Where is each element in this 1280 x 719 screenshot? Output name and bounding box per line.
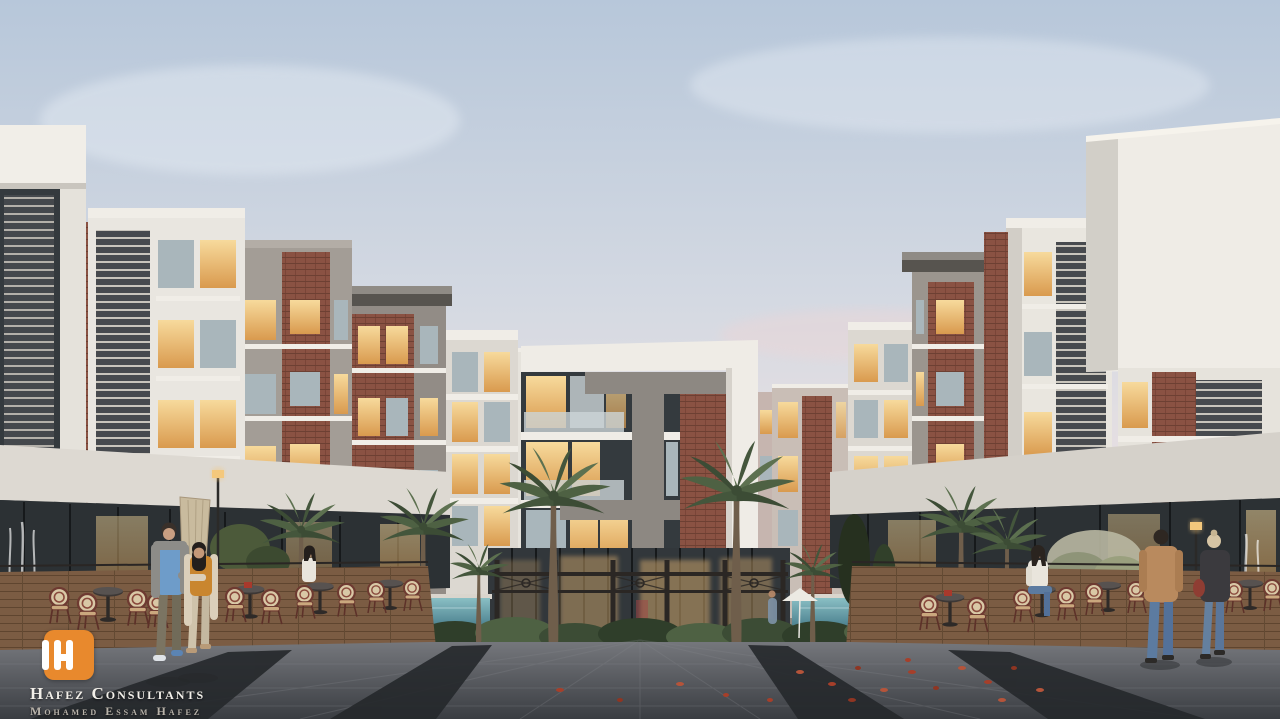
cloud (690, 37, 1210, 133)
hafez-logo-tile (44, 630, 94, 680)
table-flowers (244, 582, 252, 588)
architectural-rendering: Hafez Consultants Mohamed Essam Hafez Ar… (0, 0, 1280, 719)
table-flowers (944, 590, 952, 596)
seated-woman-left (302, 546, 316, 583)
red-handbag (1193, 579, 1205, 597)
watermark-brand: Hafez Consultants (30, 684, 269, 704)
cloud (40, 65, 460, 175)
watermark: Hafez Consultants Mohamed Essam Hafez Ar… (30, 630, 269, 719)
hafez-logo-monogram-icon (30, 630, 80, 680)
watermark-person: Mohamed Essam Hafez (30, 704, 269, 719)
scene-canvas (0, 0, 1280, 719)
